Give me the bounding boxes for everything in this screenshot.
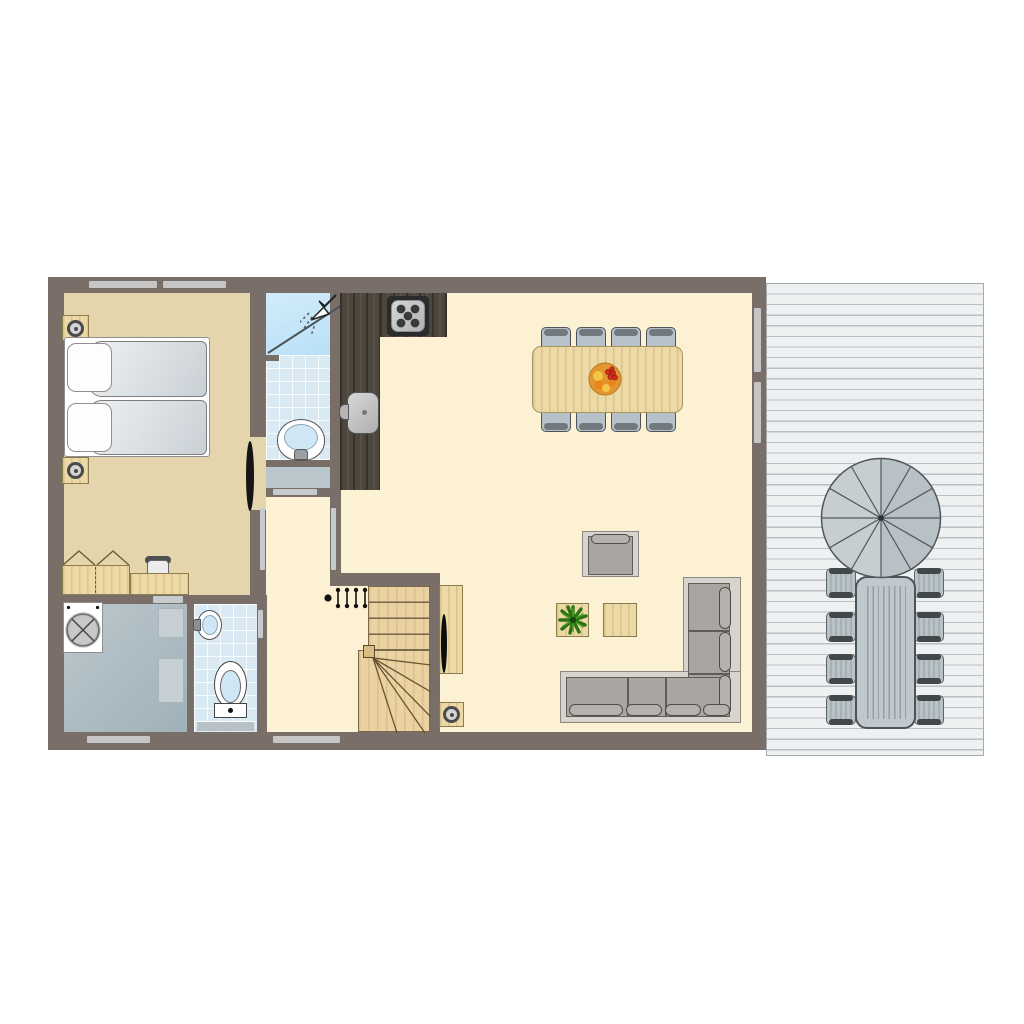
lamp-dot-icon [74, 327, 78, 331]
chair-armrest [829, 636, 853, 642]
stairs-newel-post [363, 645, 375, 658]
pillow-2 [67, 403, 112, 452]
wardrobe-open-doors-icon [62, 550, 130, 565]
terrace-chair [826, 612, 856, 642]
chair-armrest [917, 612, 941, 618]
toilet-flush-dot [228, 708, 233, 713]
chair-backrest [544, 423, 568, 430]
door-slit-hall-east [331, 508, 336, 570]
utility-shelf [158, 608, 184, 638]
pillow-1 [67, 343, 112, 392]
chair-armrest [917, 695, 941, 701]
chair-armrest [829, 695, 853, 701]
door-slit-niche [273, 489, 317, 495]
storage-niche [266, 467, 330, 488]
terrace-table [855, 576, 916, 729]
wall-above-stairs [330, 573, 440, 586]
bedroom-door-leaf [246, 441, 254, 511]
window-bottom-2 [273, 736, 340, 743]
chair-backrest [544, 329, 568, 336]
washbasin-bowl [284, 424, 318, 451]
door-slit-toilet [258, 610, 263, 638]
chair-armrest [829, 654, 853, 660]
desk [130, 573, 189, 595]
lamp-dot-icon [450, 713, 454, 717]
terrace-door-2 [754, 382, 761, 443]
floor-plan-canvas [0, 0, 1024, 1024]
hand-basin-bowl [202, 615, 218, 635]
kitchen-tap-icon [339, 404, 349, 420]
coat-rack-icon [322, 586, 370, 610]
chair-armrest [917, 654, 941, 660]
washing-machine-drum-icon [63, 602, 103, 653]
fruit-bowl [588, 362, 622, 396]
terrace-chair [914, 612, 944, 642]
sofa-back-pillow [719, 587, 731, 629]
terrace-chair [826, 695, 856, 725]
terrace-chair [914, 695, 944, 725]
wall-shower-south [266, 460, 330, 467]
chair-armrest [917, 636, 941, 642]
washbasin-tap-icon [294, 449, 308, 460]
chair-backrest [649, 329, 673, 336]
chair-armrest [829, 678, 853, 684]
window-top-1 [89, 281, 157, 288]
door-slit-hall-west [260, 508, 265, 570]
window-bottom-1 [87, 736, 150, 743]
wardrobe [62, 565, 130, 595]
chair-armrest [917, 678, 941, 684]
toilet-vanity-shelf [197, 722, 254, 731]
chair-armrest [829, 719, 853, 725]
wall-bedroom-east-upper [250, 293, 266, 437]
chair-armrest [917, 592, 941, 598]
sofa-seat-pillow [703, 704, 730, 716]
wardrobe-door-split [95, 567, 96, 593]
armchair-back-cushion [591, 534, 630, 544]
hand-basin-tap-icon [193, 619, 201, 631]
chair-backrest [614, 423, 638, 430]
shower-head-icon [300, 293, 338, 337]
chair-backrest [579, 329, 603, 336]
chair-armrest [829, 612, 853, 618]
chair-armrest [917, 719, 941, 725]
sofa-seat-pillow [626, 704, 662, 716]
chair-armrest [829, 592, 853, 598]
table-slats [863, 586, 908, 719]
sofa-back-pillow [719, 632, 731, 672]
chair-backrest [649, 423, 673, 430]
sofa-seat-pillow [665, 704, 701, 716]
toilet-seat [220, 670, 241, 703]
stairs-straight-flight [368, 586, 430, 650]
kitchen-sink-drain [362, 410, 367, 415]
door-slit-utility [153, 596, 183, 603]
utility-shelf [158, 658, 184, 703]
potted-plant-icon [557, 604, 589, 636]
lamp-dot-icon [74, 469, 78, 473]
terrace-chair [914, 654, 944, 684]
wall-shower-stub [266, 355, 279, 361]
stairs-winder [358, 650, 430, 732]
window-top-2 [163, 281, 226, 288]
side-table [603, 603, 637, 637]
chair-backrest [579, 423, 603, 430]
hob-burners-icon [391, 300, 425, 332]
sofa-seat-pillow [569, 704, 623, 716]
terrace-door-1 [754, 308, 761, 372]
tv-icon [441, 614, 447, 673]
parasol [820, 457, 942, 579]
chair-backrest [614, 329, 638, 336]
terrace-chair [826, 654, 856, 684]
